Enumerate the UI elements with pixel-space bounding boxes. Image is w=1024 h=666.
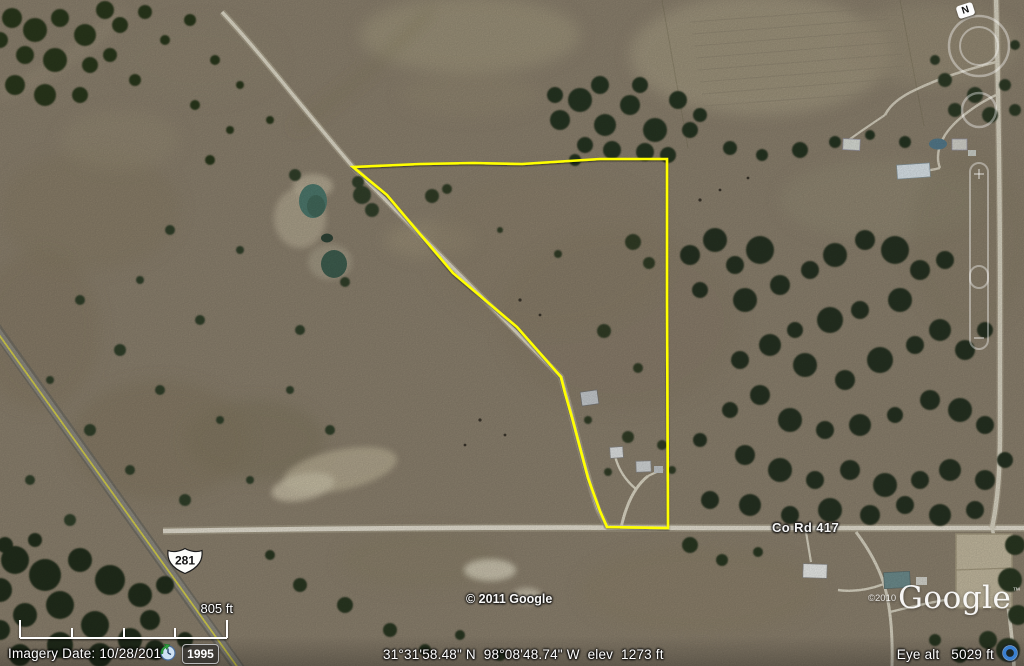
trademark-symbol: ™ [1012,586,1020,595]
imagery-grain [0,0,1024,666]
center-copyright-watermark: © 2011 Google [466,592,552,606]
streaming-progress-icon [999,642,1021,664]
eye-altitude: Eye alt 5029 ft [897,647,994,662]
route-shield-number: 281 [175,554,195,568]
time-slider-year-badge[interactable]: 1995 [182,644,219,664]
historical-imagery-clock-icon[interactable] [158,643,176,661]
pointer-coordinates: 31°31'58.48" N 98°08'48.74" W elev 1273 … [383,647,664,662]
logo-copyright-text: ©2010 [868,593,896,604]
imagery-date-label: Imagery Date: 10/28/2010 [8,646,169,661]
satellite-imagery[interactable] [0,0,1024,666]
google-earth-viewport: 281 Co Rd 417 N 805 ft © 2011 Google ©20… [0,0,1024,666]
route-shield-281: 281 [166,547,204,575]
google-logo: ©2010 Google ™ [868,583,1020,613]
road-label-co-rd-417: Co Rd 417 [772,520,839,535]
google-logo-text: Google [898,583,1011,613]
scale-label: 805 ft [153,601,233,616]
